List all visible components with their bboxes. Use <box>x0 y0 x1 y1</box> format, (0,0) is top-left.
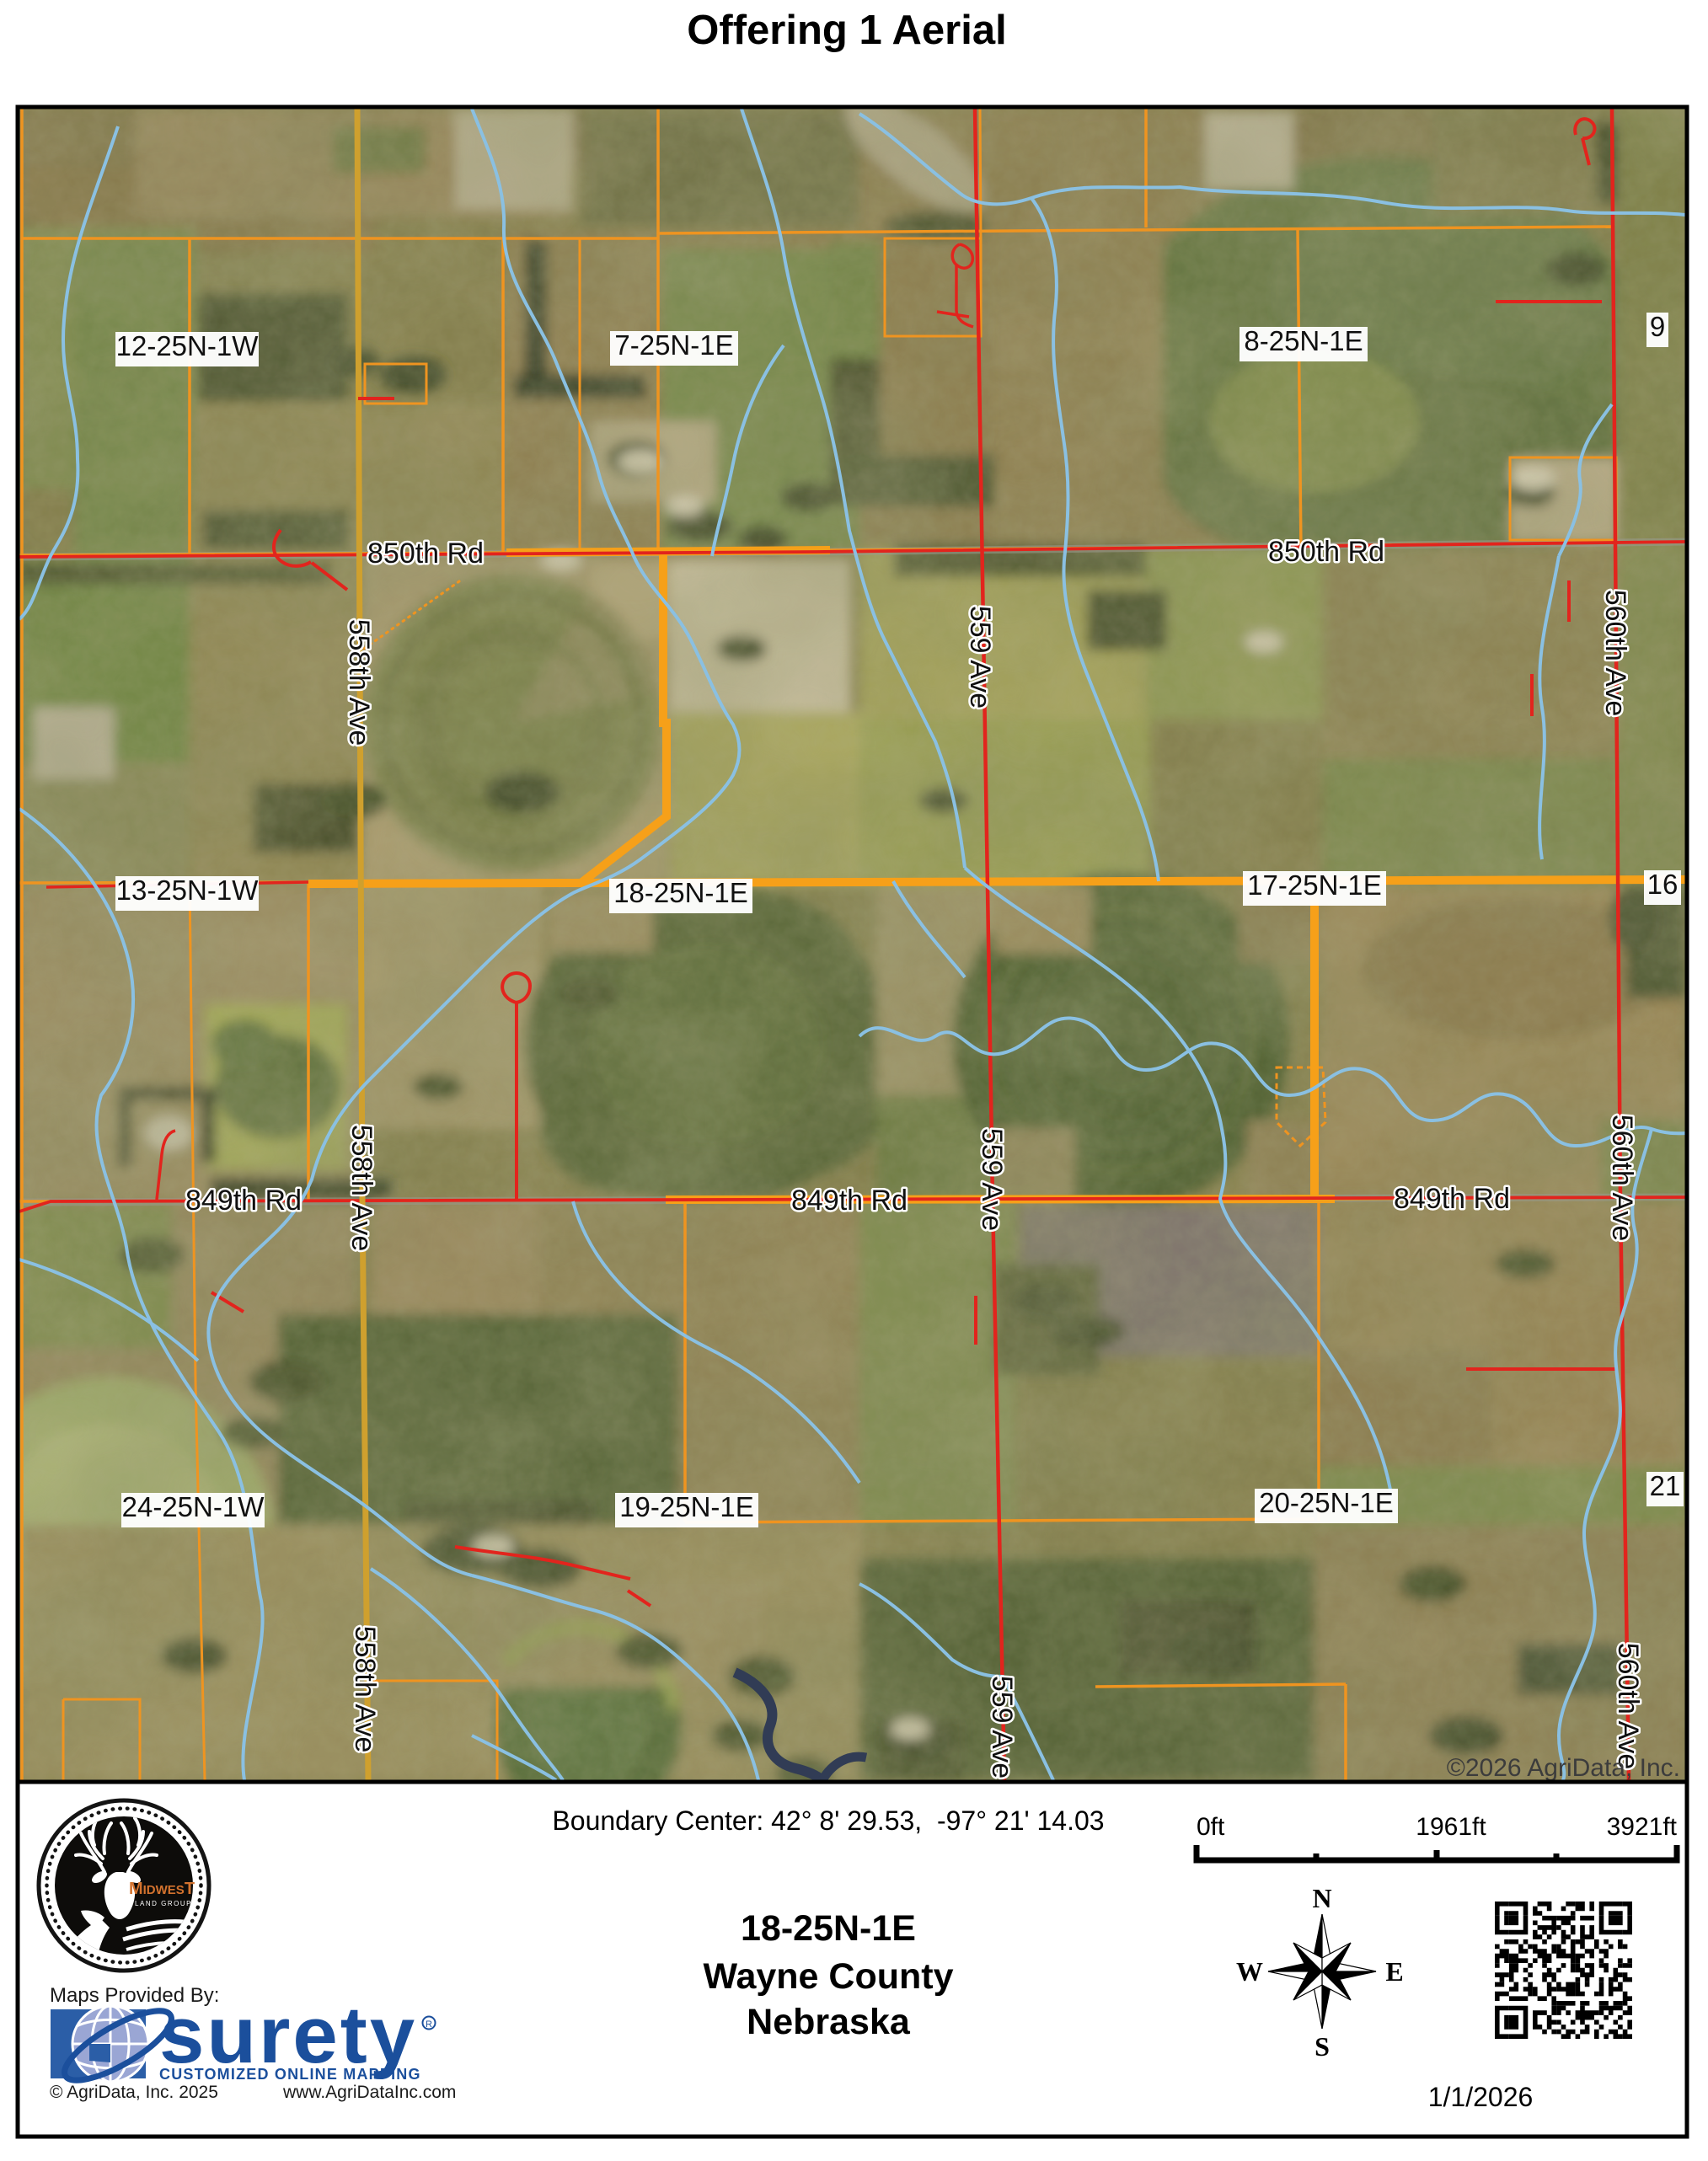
svg-text:18-25N-1E: 18-25N-1E <box>741 1908 916 1949</box>
svg-text:MIDWEST: MIDWEST <box>129 1880 195 1898</box>
svg-text:560th Ave: 560th Ave <box>1599 590 1631 717</box>
svg-text:S: S <box>1314 2031 1330 2062</box>
svg-text:8-25N-1E: 8-25N-1E <box>1244 325 1363 356</box>
svg-text:R: R <box>426 2019 432 2030</box>
svg-text:7-25N-1E: 7-25N-1E <box>614 329 733 361</box>
svg-text:560th Ave: 560th Ave <box>1606 1115 1638 1242</box>
svg-text:24-25N-1W: 24-25N-1W <box>122 1491 265 1522</box>
svg-text:849th Rd: 849th Rd <box>185 1185 302 1217</box>
svg-text:21: 21 <box>1650 1470 1681 1501</box>
svg-text:E: E <box>1385 1956 1403 1987</box>
svg-text:559 Ave: 559 Ave <box>964 606 996 709</box>
svg-text:16: 16 <box>1647 869 1679 900</box>
svg-text:Nebraska: Nebraska <box>747 2002 911 2042</box>
svg-text:0ft: 0ft <box>1197 1813 1225 1841</box>
svg-text:W: W <box>1236 1956 1263 1987</box>
svg-text:Boundary Center: 42° 8' 29.53,: Boundary Center: 42° 8' 29.53, -97° 21' … <box>552 1805 1104 1836</box>
svg-text:Offering 1 Aerial: Offering 1 Aerial <box>687 8 1006 53</box>
svg-text:Wayne County: Wayne County <box>703 1956 953 1997</box>
svg-text:CUSTOMIZED ONLINE MAPPING: CUSTOMIZED ONLINE MAPPING <box>159 2066 421 2083</box>
svg-text:N: N <box>1312 1883 1331 1913</box>
svg-text:849th Rd: 849th Rd <box>791 1185 908 1217</box>
svg-text:17-25N-1E: 17-25N-1E <box>1247 869 1382 901</box>
svg-text:20-25N-1E: 20-25N-1E <box>1259 1487 1394 1518</box>
svg-text:3921ft: 3921ft <box>1607 1813 1678 1841</box>
svg-text:560th Ave: 560th Ave <box>1612 1643 1644 1770</box>
svg-text:www.AgriDataInc.com: www.AgriDataInc.com <box>282 2083 456 2102</box>
svg-text:©2026 AgriData, Inc.: ©2026 AgriData, Inc. <box>1447 1754 1680 1782</box>
svg-text:559 Ave: 559 Ave <box>976 1128 1008 1231</box>
svg-text:850th Rd: 850th Rd <box>367 538 484 570</box>
svg-text:558th Ave: 558th Ave <box>345 1125 377 1252</box>
svg-text:1/1/2026: 1/1/2026 <box>1428 2082 1534 2112</box>
svg-text:558th Ave: 558th Ave <box>343 619 375 746</box>
svg-text:9: 9 <box>1650 311 1665 342</box>
svg-text:18-25N-1E: 18-25N-1E <box>613 877 748 908</box>
svg-text:LAND GROUP: LAND GROUP <box>135 1900 192 1907</box>
svg-text:19-25N-1E: 19-25N-1E <box>619 1491 754 1522</box>
svg-text:13-25N-1W: 13-25N-1W <box>116 875 260 906</box>
svg-text:850th Rd: 850th Rd <box>1268 536 1384 568</box>
svg-text:1961ft: 1961ft <box>1416 1813 1486 1841</box>
svg-text:559 Ave: 559 Ave <box>986 1676 1018 1779</box>
svg-text:12-25N-1W: 12-25N-1W <box>116 330 260 361</box>
svg-text:558th Ave: 558th Ave <box>349 1626 381 1753</box>
svg-text:© AgriData, Inc. 2025: © AgriData, Inc. 2025 <box>50 2083 218 2102</box>
svg-text:849th Rd: 849th Rd <box>1394 1183 1510 1215</box>
